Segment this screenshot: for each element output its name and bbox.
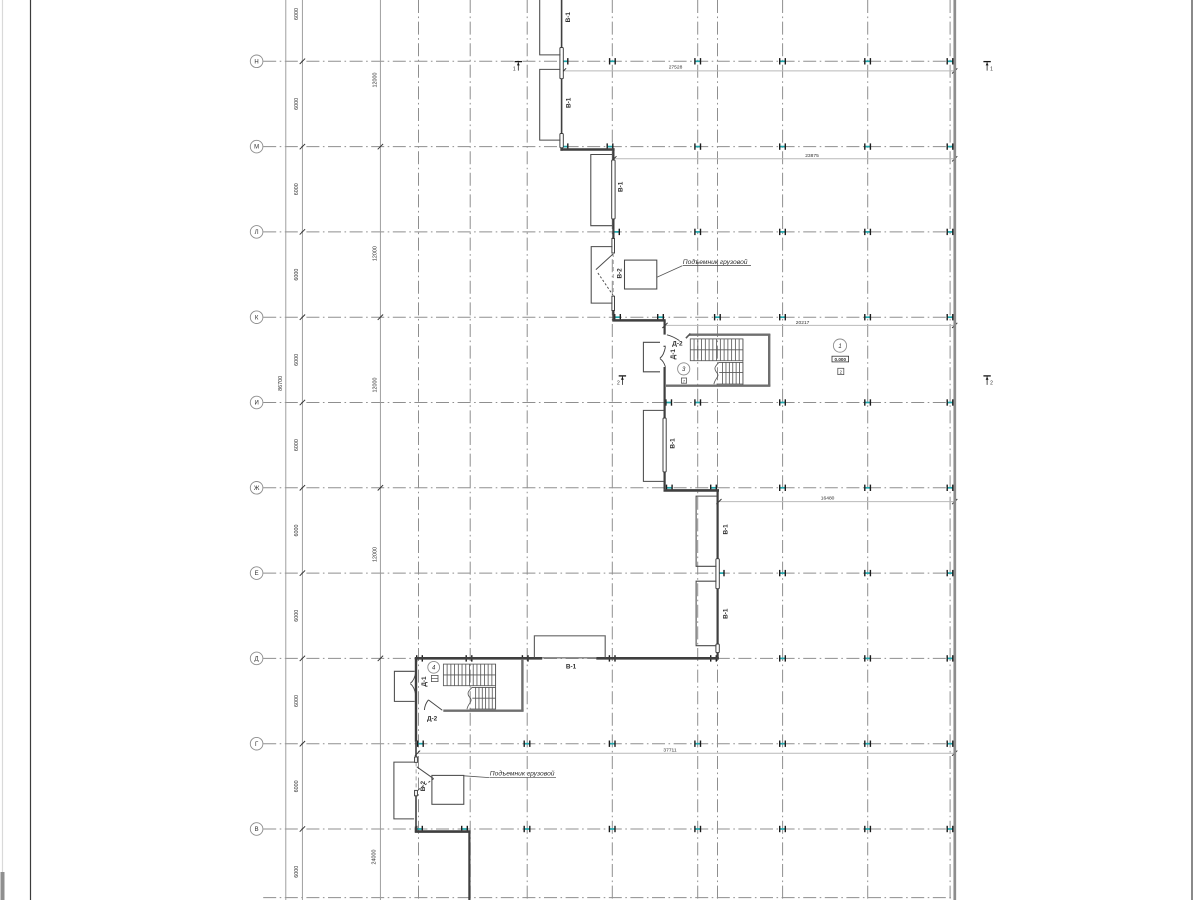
svg-text:24000: 24000 [372, 850, 378, 865]
svg-text:2: 2 [617, 381, 620, 387]
svg-text:И: И [254, 401, 258, 407]
svg-text:Л: Л [255, 230, 259, 236]
svg-text:Ж: Ж [254, 486, 260, 492]
svg-text:6000: 6000 [294, 695, 300, 707]
svg-text:4: 4 [432, 666, 436, 672]
svg-text:В: В [255, 827, 259, 833]
svg-text:2: 2 [990, 381, 993, 387]
svg-text:В-2: В-2 [420, 781, 427, 792]
svg-text:В-1: В-1 [722, 524, 729, 535]
svg-text:6000: 6000 [294, 780, 300, 792]
svg-text:12000: 12000 [372, 547, 378, 562]
svg-text:Г: Г [255, 742, 259, 748]
svg-text:В-1: В-1 [566, 664, 577, 671]
svg-text:Н: Н [254, 59, 258, 65]
svg-text:Д: Д [255, 657, 259, 663]
svg-text:0.000: 0.000 [835, 357, 847, 362]
svg-text:В-2: В-2 [616, 268, 623, 279]
svg-text:1: 1 [513, 66, 516, 72]
svg-text:2: 2 [840, 369, 843, 374]
svg-text:6000: 6000 [294, 866, 300, 878]
svg-text:86700: 86700 [278, 376, 284, 391]
svg-text:Подъемник грузовой: Подъемник грузовой [490, 770, 555, 778]
svg-text:23875: 23875 [805, 153, 819, 159]
svg-text:6000: 6000 [294, 610, 300, 622]
svg-text:6000: 6000 [294, 183, 300, 195]
svg-text:6000: 6000 [294, 98, 300, 110]
svg-text:6000: 6000 [294, 269, 300, 281]
svg-text:В-1: В-1 [617, 181, 624, 192]
svg-text:В-1: В-1 [722, 608, 729, 619]
svg-text:37711: 37711 [663, 747, 677, 753]
svg-text:В-1: В-1 [565, 97, 572, 108]
svg-text:6000: 6000 [294, 525, 300, 537]
svg-text:Д-2: Д-2 [427, 716, 438, 723]
svg-text:Д-2: Д-2 [672, 341, 683, 348]
svg-text:К: К [255, 315, 259, 321]
svg-text:20217: 20217 [796, 320, 810, 326]
svg-text:1: 1 [990, 66, 993, 72]
svg-text:В-1: В-1 [565, 12, 572, 23]
svg-text:12000: 12000 [372, 73, 378, 88]
svg-text:Подъемник грузовой: Подъемник грузовой [683, 258, 748, 266]
svg-text:3: 3 [682, 367, 686, 373]
svg-text:16480: 16480 [821, 496, 835, 502]
svg-text:6000: 6000 [294, 354, 300, 366]
svg-text:7: 7 [683, 378, 686, 383]
svg-text:В-1: В-1 [670, 438, 677, 449]
svg-text:Д-1: Д-1 [670, 349, 677, 360]
svg-text:12000: 12000 [372, 378, 378, 393]
svg-text:1: 1 [838, 344, 841, 350]
svg-text:27528: 27528 [669, 64, 683, 70]
svg-text:Е: Е [255, 571, 259, 577]
svg-text:6000: 6000 [294, 8, 300, 20]
svg-text:Д-1: Д-1 [421, 676, 428, 687]
svg-text:12000: 12000 [372, 246, 378, 261]
svg-text:М: М [254, 145, 259, 151]
svg-text:6000: 6000 [294, 439, 300, 451]
